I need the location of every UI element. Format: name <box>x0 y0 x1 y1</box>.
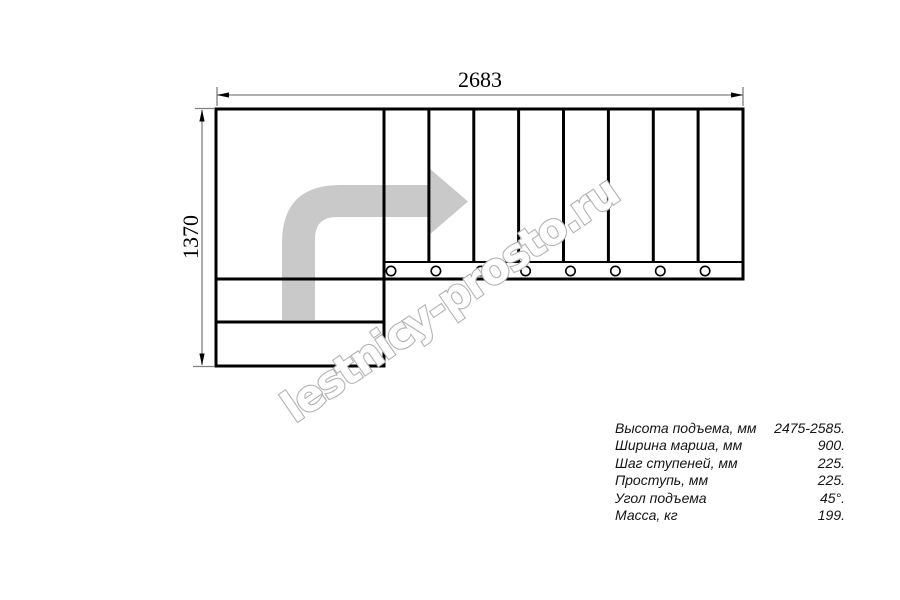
dimension-arrow-up-icon <box>199 110 204 122</box>
spec-label: Высота подъема, мм <box>615 420 757 437</box>
spec-row-height: Высота подъема, мм 2475-2585. <box>615 420 845 437</box>
stringer-holes <box>386 266 710 275</box>
height-dimension: 1370 <box>178 109 214 367</box>
spec-row-step-pitch: Шаг ступеней, мм 225. <box>615 455 845 472</box>
spec-value: 225. <box>818 472 845 489</box>
specs-table: Высота подъема, мм 2475-2585. Ширина мар… <box>615 420 845 525</box>
width-dimension: 2683 <box>217 67 743 106</box>
spec-row-angle: Угол подъема 45°. <box>615 490 845 507</box>
stringer-hole <box>656 266 665 275</box>
spec-value: 900. <box>818 437 845 454</box>
spec-value: 225. <box>818 455 845 472</box>
spec-value: 2475-2585. <box>774 420 845 437</box>
stringer-hole <box>566 266 575 275</box>
stringer-hole <box>431 266 440 275</box>
spec-label: Угол подъема <box>615 490 707 507</box>
spec-row-tread: Проступь, мм 225. <box>615 472 845 489</box>
height-dimension-label: 1370 <box>178 215 203 259</box>
width-dimension-label: 2683 <box>458 67 502 92</box>
spec-label: Шаг ступеней, мм <box>615 455 738 472</box>
stringer-hole <box>386 266 395 275</box>
stringer-hole <box>700 266 709 275</box>
spec-label: Масса, кг <box>615 507 678 524</box>
stringer-hole <box>611 266 620 275</box>
spec-value: 199. <box>818 507 845 524</box>
dimension-arrow-left-icon <box>217 92 229 97</box>
spec-label: Проступь, мм <box>615 472 708 489</box>
spec-row-mass: Масса, кг 199. <box>615 507 845 524</box>
spec-value: 45°. <box>820 490 845 507</box>
spec-label: Ширина марша, мм <box>615 437 742 454</box>
spec-row-flight-width: Ширина марша, мм 900. <box>615 437 845 454</box>
dimension-arrow-down-icon <box>199 354 204 366</box>
dimension-arrow-right-icon <box>731 92 743 97</box>
